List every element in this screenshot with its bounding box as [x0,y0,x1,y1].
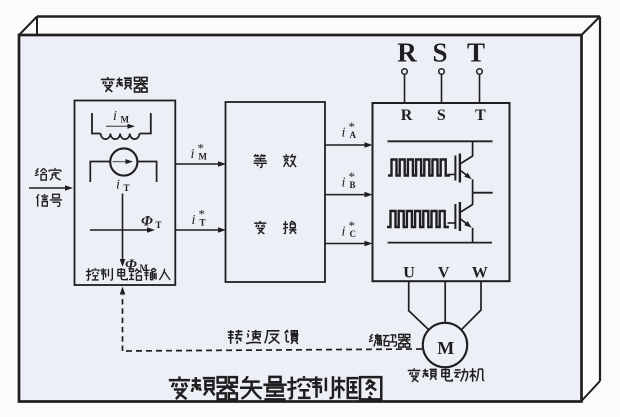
svg-text:R: R [397,38,417,68]
svg-text:T: T [124,183,130,193]
svg-text:i: i [113,109,117,124]
svg-text:C: C [350,229,357,239]
svg-text:i: i [191,147,195,162]
svg-text:M: M [437,338,454,358]
svg-text:R: R [401,107,413,124]
svg-text:U: U [403,264,415,281]
svg-text:T: T [156,220,162,230]
svg-text:V: V [438,264,450,281]
svg-text:S: S [432,38,447,68]
svg-text:i: i [116,178,120,193]
svg-text:i: i [342,176,346,191]
svg-text:i: i [342,225,346,240]
svg-text:B: B [350,180,356,190]
svg-text:W: W [472,264,488,281]
svg-text:S: S [437,107,446,124]
svg-text:M: M [199,152,208,162]
svg-text:T: T [475,107,486,124]
svg-text:i: i [342,126,346,141]
svg-text:A: A [350,130,357,140]
svg-text:Φ: Φ [141,214,153,230]
svg-text:T: T [200,218,206,228]
svg-text:M: M [121,115,130,125]
svg-text:T: T [467,38,485,68]
svg-text:i: i [192,213,196,228]
